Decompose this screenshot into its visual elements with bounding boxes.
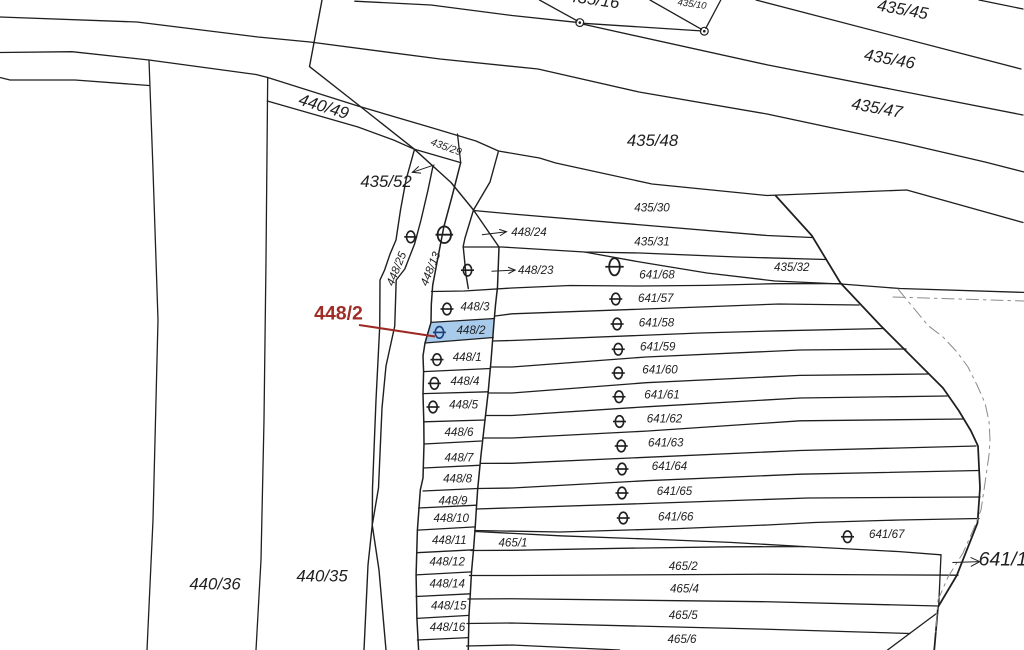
svg-text:448/23: 448/23 xyxy=(518,264,554,277)
svg-text:641/63: 641/63 xyxy=(648,437,684,450)
svg-text:641/65: 641/65 xyxy=(657,485,693,498)
svg-text:448/3: 448/3 xyxy=(460,301,490,314)
svg-text:448/9: 448/9 xyxy=(438,494,468,507)
svg-text:435/31: 435/31 xyxy=(634,236,669,249)
svg-text:448/11: 448/11 xyxy=(432,534,467,547)
svg-text:435/30: 435/30 xyxy=(634,202,670,215)
svg-text:641/64: 641/64 xyxy=(652,460,688,473)
svg-text:440/36: 440/36 xyxy=(189,574,241,593)
svg-text:440/35: 440/35 xyxy=(296,566,348,585)
svg-text:448/2: 448/2 xyxy=(456,324,486,337)
svg-text:448/4: 448/4 xyxy=(450,375,480,388)
svg-text:465/5: 465/5 xyxy=(669,609,699,622)
svg-text:641/62: 641/62 xyxy=(647,413,683,426)
svg-text:641/61: 641/61 xyxy=(644,389,679,402)
svg-text:465/4: 465/4 xyxy=(670,582,700,595)
svg-text:435/52: 435/52 xyxy=(360,172,412,191)
svg-text:448/6: 448/6 xyxy=(444,426,474,439)
svg-text:641/67: 641/67 xyxy=(869,528,905,541)
svg-text:641/59: 641/59 xyxy=(640,340,676,353)
svg-text:448/7: 448/7 xyxy=(444,452,474,465)
svg-text:448/2: 448/2 xyxy=(314,303,363,325)
svg-text:641/1: 641/1 xyxy=(979,549,1024,571)
svg-text:641/58: 641/58 xyxy=(639,317,675,330)
svg-text:448/8: 448/8 xyxy=(443,472,473,485)
svg-text:448/10: 448/10 xyxy=(433,512,469,525)
svg-text:465/1: 465/1 xyxy=(498,537,527,550)
svg-text:641/60: 641/60 xyxy=(642,363,678,376)
svg-text:435/48: 435/48 xyxy=(627,131,679,150)
svg-text:448/1: 448/1 xyxy=(453,351,482,364)
svg-text:448/5: 448/5 xyxy=(449,399,479,412)
svg-text:641/66: 641/66 xyxy=(658,510,694,523)
svg-text:448/12: 448/12 xyxy=(429,556,465,569)
svg-text:641/57: 641/57 xyxy=(638,292,674,305)
svg-text:448/15: 448/15 xyxy=(431,599,467,612)
svg-text:448/16: 448/16 xyxy=(430,621,466,634)
svg-text:465/6: 465/6 xyxy=(667,633,697,646)
svg-text:448/24: 448/24 xyxy=(511,226,547,239)
svg-text:641/68: 641/68 xyxy=(639,269,675,282)
svg-text:435/32: 435/32 xyxy=(774,261,810,274)
svg-text:465/2: 465/2 xyxy=(669,560,699,573)
svg-text:448/14: 448/14 xyxy=(429,577,465,590)
